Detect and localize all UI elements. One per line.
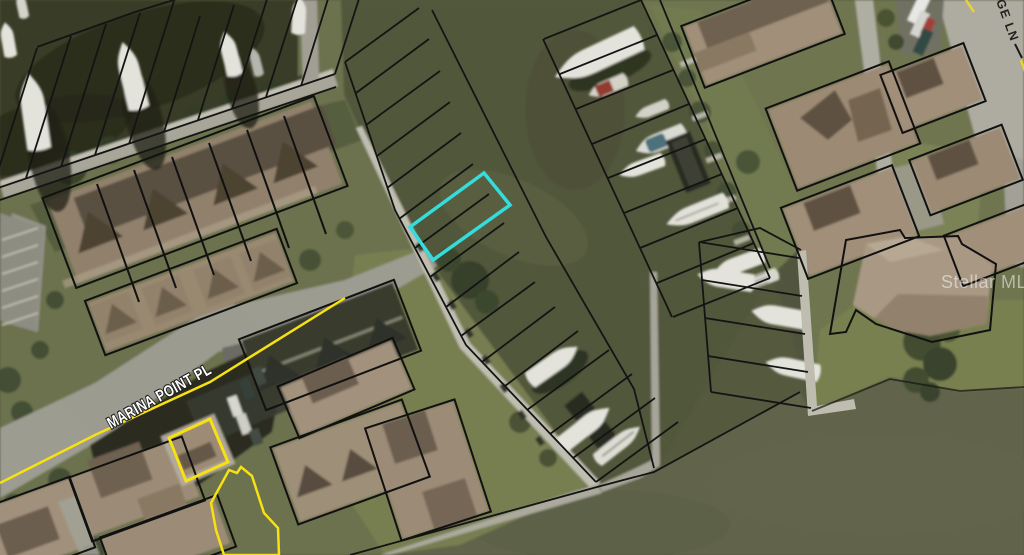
svg-text:Stellar MLS: Stellar MLS	[941, 272, 1024, 292]
